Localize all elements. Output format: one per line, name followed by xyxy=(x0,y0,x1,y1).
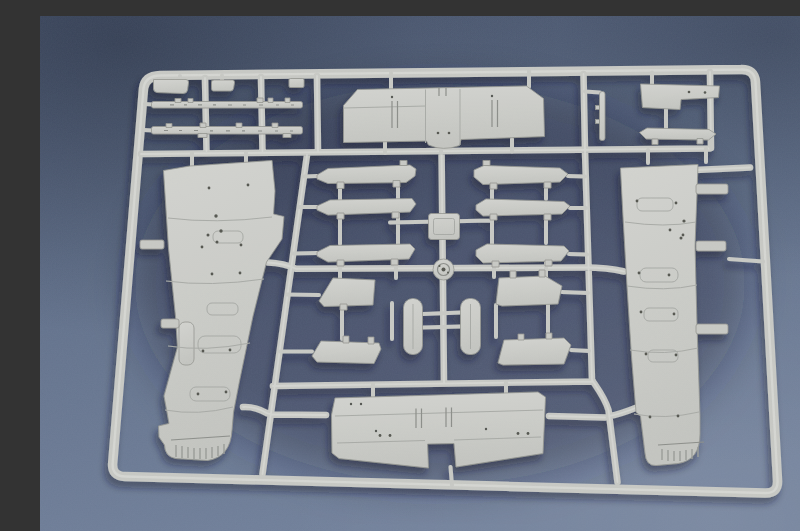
sprue-photo xyxy=(40,16,800,531)
photo-grain xyxy=(40,16,800,531)
sprue-photo-canvas xyxy=(40,16,800,531)
